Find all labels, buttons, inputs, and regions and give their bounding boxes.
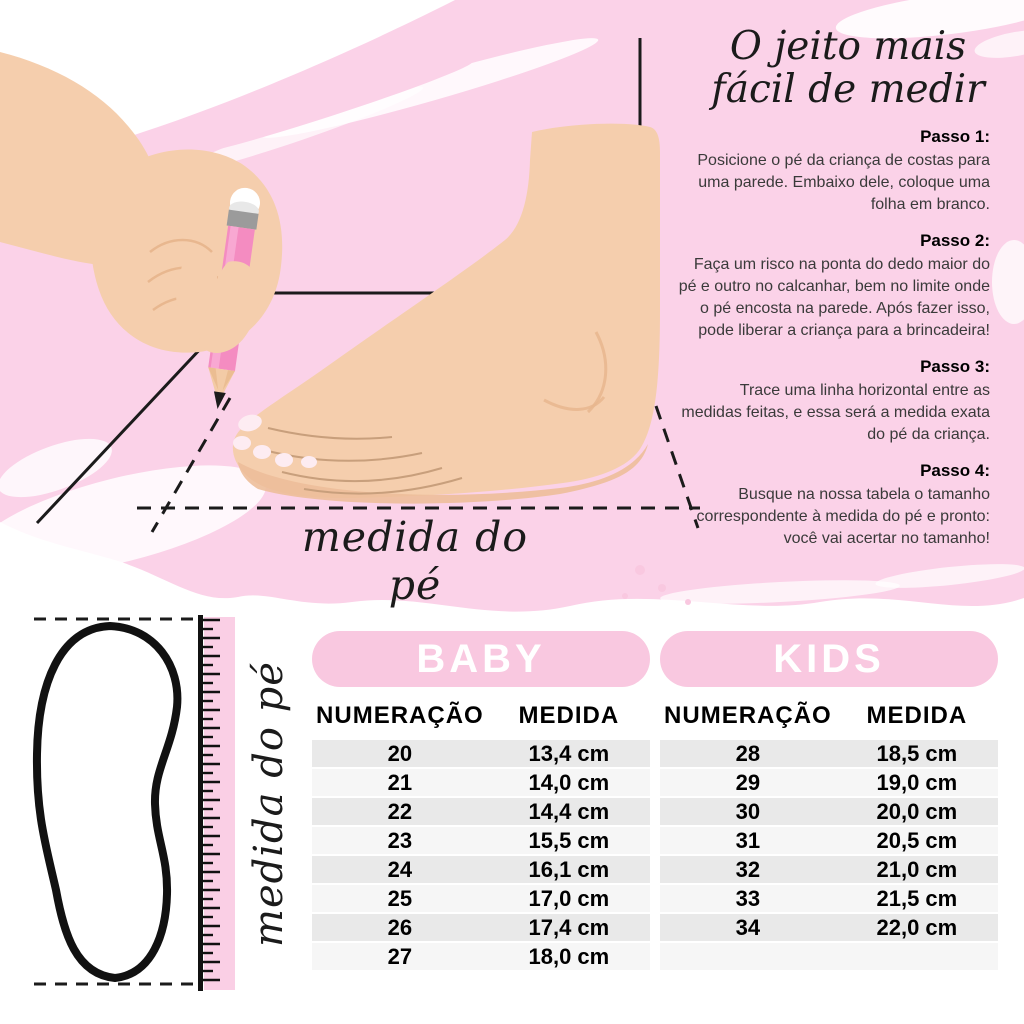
kids-col-measure: MEDIDA [836, 702, 998, 730]
step-2-body: Faça um risco na ponta do dedo maior do … [678, 254, 990, 342]
table-row: 2315,5 cm [312, 827, 650, 854]
step-1-heading: Passo 1: [678, 127, 990, 147]
step-1-body: Posicione o pé da criança de costas para… [678, 150, 990, 216]
step-4: Passo 4: Busque na nossa tabela o tamanh… [678, 461, 990, 550]
step-2-heading: Passo 2: [678, 231, 990, 251]
table-row: 3020,0 cm [660, 798, 998, 825]
kids-table-rows: 2818,5 cm 2919,0 cm 3020,0 cm 3120,5 cm … [660, 740, 998, 970]
guide-title: O jeito mais fácil de medir [678, 26, 990, 112]
guide-title-line2: fácil de medir [706, 69, 990, 112]
ruler-line [198, 615, 203, 991]
ruler-label: medida do pé [246, 649, 290, 959]
table-row: 2718,0 cm [312, 943, 650, 970]
kids-table-header: NUMERAÇÃO MEDIDA [660, 702, 998, 730]
table-row: 2818,5 cm [660, 740, 998, 767]
table-row-empty [660, 943, 998, 970]
table-row: 3221,0 cm [660, 856, 998, 883]
baby-table-rows: 2013,4 cm 2114,0 cm 2214,4 cm 2315,5 cm … [312, 740, 650, 970]
step-1: Passo 1: Posicione o pé da criança de co… [678, 127, 990, 216]
table-row: 2013,4 cm [312, 740, 650, 767]
table-row: 2617,4 cm [312, 914, 650, 941]
baby-col-measure: MEDIDA [488, 702, 650, 730]
kids-table-title-pill: KIDS [660, 631, 998, 687]
hand [91, 149, 282, 352]
foot-measure-label: medida do pé [285, 513, 545, 609]
baby-col-size: NUMERAÇÃO [312, 702, 488, 730]
baby-table-title-pill: BABY [312, 631, 650, 687]
table-row: 2114,0 cm [312, 769, 650, 796]
step-2: Passo 2: Faça um risco na ponta do dedo … [678, 231, 990, 342]
kids-size-table: KIDS NUMERAÇÃO MEDIDA 2818,5 cm 2919,0 c… [660, 631, 998, 972]
table-row: 3321,5 cm [660, 885, 998, 912]
baby-size-table: BABY NUMERAÇÃO MEDIDA 2013,4 cm 2114,0 c… [312, 631, 650, 972]
table-row: 2416,1 cm [312, 856, 650, 883]
step-4-heading: Passo 4: [678, 461, 990, 481]
kids-col-size: NUMERAÇÃO [660, 702, 836, 730]
table-row: 3120,5 cm [660, 827, 998, 854]
table-row: 3422,0 cm [660, 914, 998, 941]
baby-table-header: NUMERAÇÃO MEDIDA [312, 702, 650, 730]
ruler-ticks [203, 620, 220, 980]
step-3-body: Trace uma linha horizontal entre as medi… [678, 380, 990, 446]
step-3-heading: Passo 3: [678, 357, 990, 377]
foot-outline [37, 626, 177, 978]
table-row: 2517,0 cm [312, 885, 650, 912]
step-4-body: Busque na nossa tabela o tamanho corresp… [678, 484, 990, 550]
table-row: 2214,4 cm [312, 798, 650, 825]
table-row: 2919,0 cm [660, 769, 998, 796]
step-3: Passo 3: Trace uma linha horizontal entr… [678, 357, 990, 446]
measuring-guide: O jeito mais fácil de medir Passo 1: Pos… [678, 26, 990, 550]
guide-title-line1: O jeito mais [706, 26, 990, 69]
page: { "colors": { "background_pink": "#FBD2E… [0, 0, 1024, 1024]
